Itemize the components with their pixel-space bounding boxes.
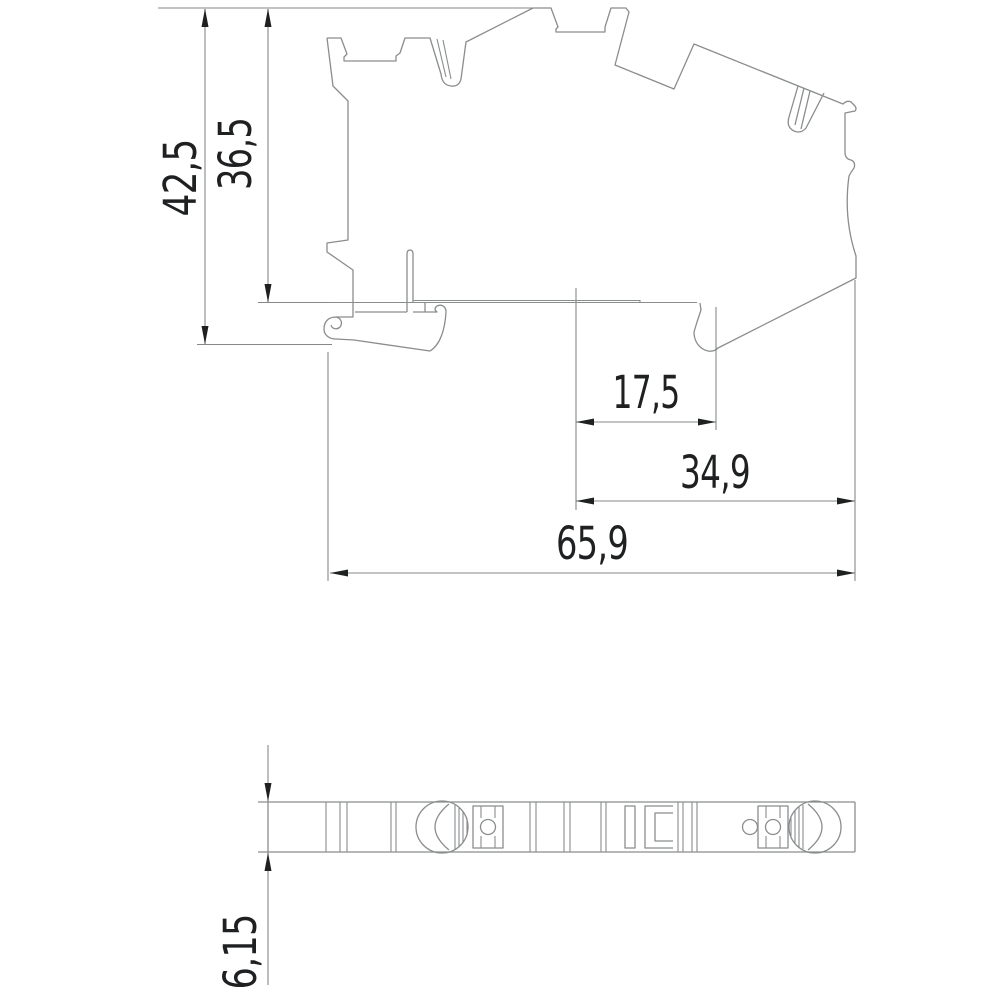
arrowhead-up [265,9,272,28]
side-view-outline-left [327,38,353,302]
test-socket-left [473,806,503,848]
test-point-hole [743,820,758,835]
dimension-label-offset-large: 34,9 [680,446,750,499]
terminal-block-drawing: 42,5 36,5 17,5 34,9 65,9 [0,0,1000,1000]
test-socket-right [758,806,788,848]
arrowhead-up [202,9,209,28]
dimension-overall-height: 42,5 [154,9,209,345]
socket-frame-left [473,806,503,848]
release-lever-left [437,39,451,79]
dimension-upper-height: 36,5 [209,9,272,303]
socket-frame-right [758,806,788,848]
side-view [258,8,856,351]
arrowhead-left [576,498,594,505]
dimension-label-upper-height: 36,5 [209,118,262,190]
arrowhead-down [265,783,272,802]
actuator-hatch-left [455,805,467,849]
arrowhead-right [837,570,855,577]
arrowhead-left [330,570,348,577]
arrowhead-left [576,419,594,426]
actuator-right [789,801,841,853]
actuator-circle-left [416,801,468,853]
dimension-offset-large: 34,9 [576,446,855,505]
actuator-left [416,801,468,853]
bottom-strip-view [258,801,855,853]
strip-bar [625,806,635,848]
arrowhead-right [698,419,716,426]
arrowhead-down [265,284,272,303]
socket-hole-left [481,820,496,835]
dimension-overall-length: 65,9 [330,517,855,577]
strip-partition-lines [326,802,697,852]
dimension-label-overall-length: 65,9 [556,517,628,570]
arrowhead-up [265,853,272,872]
dimension-offset-small: 17,5 [576,366,716,426]
arrowhead-right [837,498,855,505]
arrowhead-down [202,326,209,345]
actuator-hatch-right [791,805,803,849]
actuator-lever-arc-left [435,804,449,850]
dimension-thickness: 6,15 [214,745,272,990]
din-rail-foot [324,303,446,351]
strip-bracket [645,806,673,848]
technical-drawing-page: 42,5 36,5 17,5 34,9 65,9 [0,0,1000,1000]
dimension-lines-side-view: 42,5 36,5 17,5 34,9 65,9 [154,8,855,581]
release-lever-right [788,86,824,132]
dimension-label-thickness: 6,15 [214,915,267,990]
actuator-lever-arc-right [808,804,822,850]
dimension-label-overall-height: 42,5 [154,140,207,217]
socket-hole-right [766,820,781,835]
dimension-label-offset-small: 17,5 [613,366,680,419]
actuator-circle-right [789,801,841,853]
